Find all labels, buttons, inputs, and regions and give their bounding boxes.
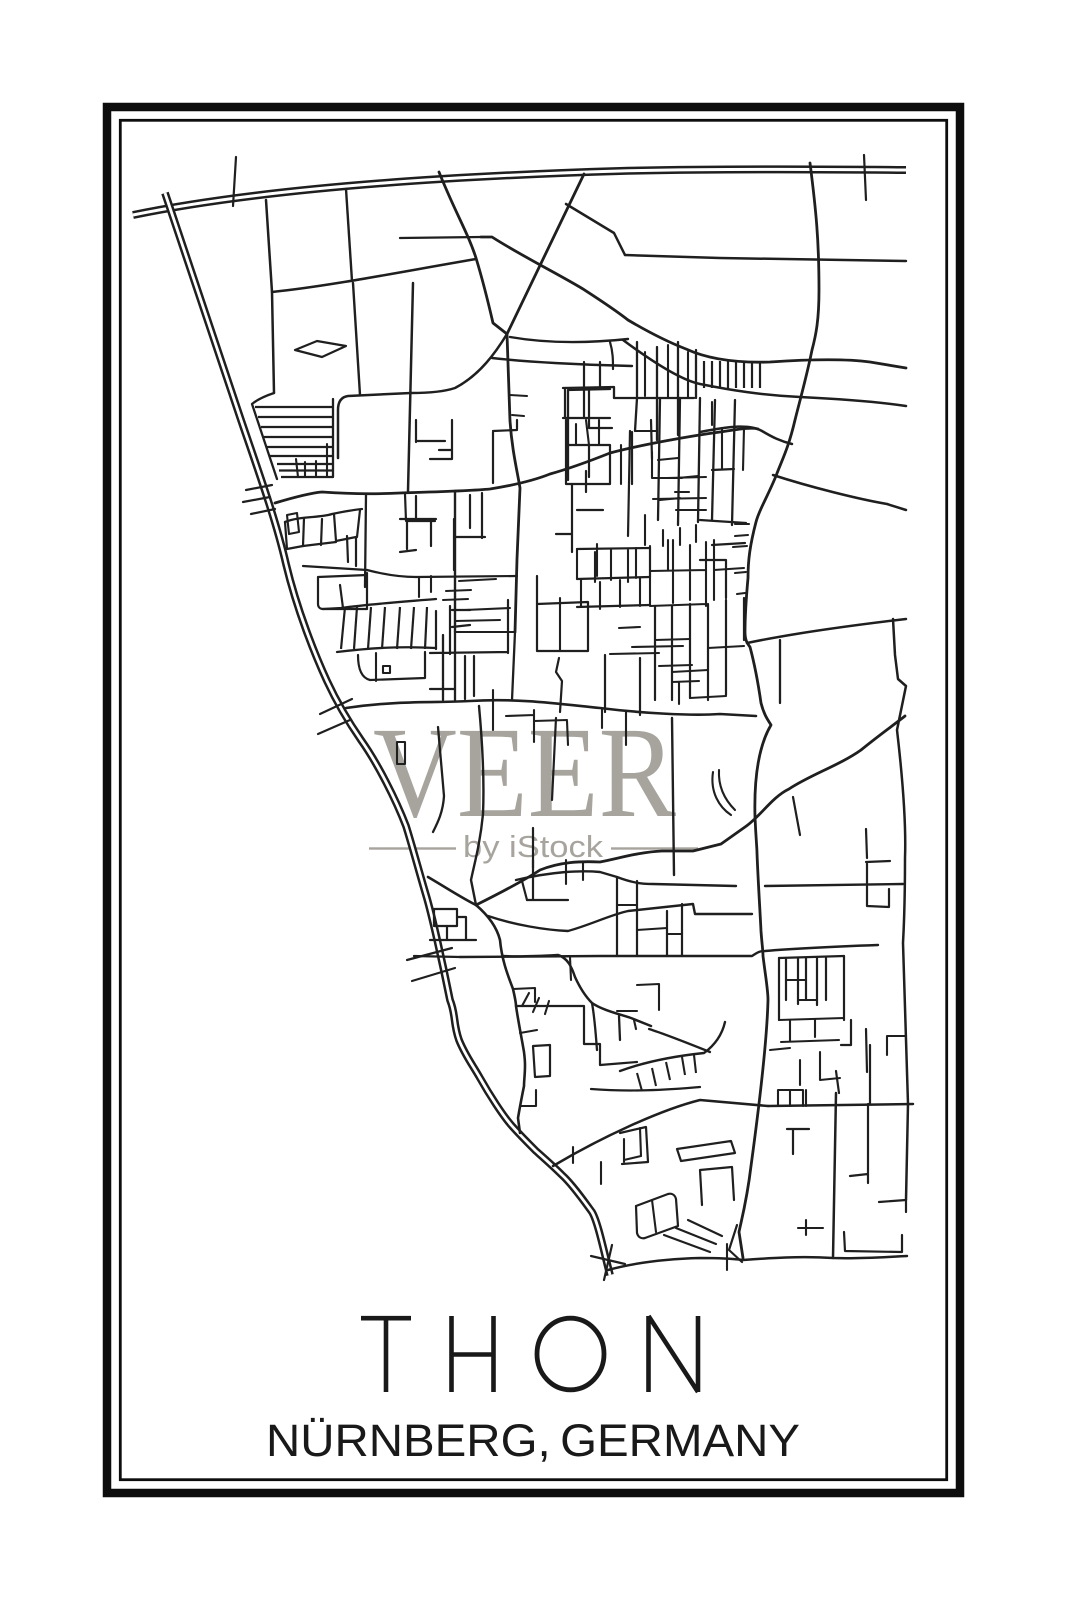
svg-text:VEER: VEER — [373, 701, 676, 845]
svg-text:NÜRNBERG, GERMANY: NÜRNBERG, GERMANY — [266, 1415, 800, 1466]
